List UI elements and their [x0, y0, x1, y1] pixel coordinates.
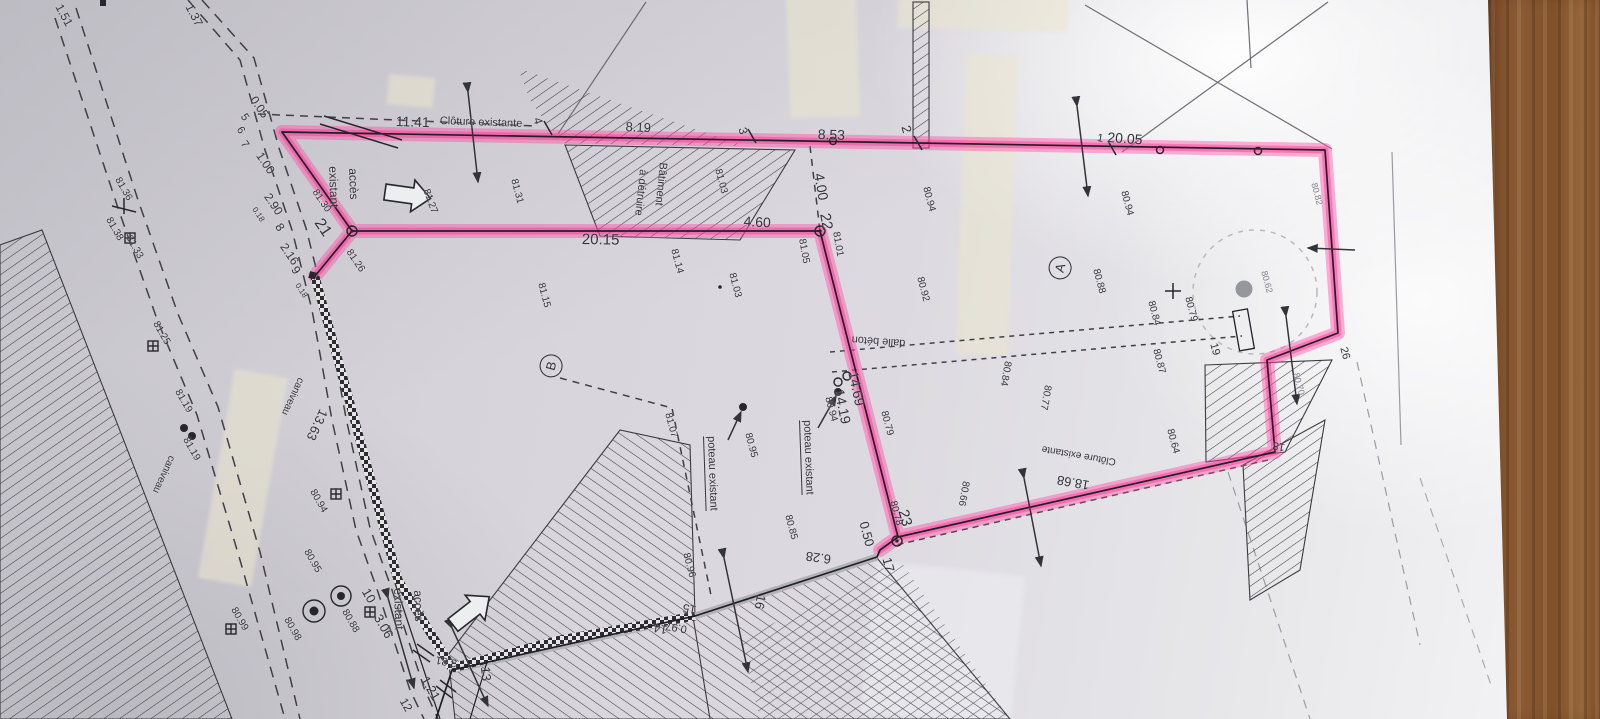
plan-label: 80.84 [1145, 300, 1161, 327]
plan-label: 18 [1272, 439, 1286, 452]
plan-label: à détruire [632, 169, 648, 216]
plan-label: dalle béton [851, 333, 905, 348]
plan-label: 81.27 [421, 188, 439, 215]
plan-label: 1.37 [183, 2, 205, 28]
plan-label: 17 [880, 556, 896, 573]
plan-label: 81.26 [344, 248, 366, 274]
plan-label: 80.79 [878, 410, 894, 437]
plan-label: 80.95 [742, 432, 758, 459]
plan-labels-layer: 1.511.370.055671.002.900.1882.1690.18218… [0, 0, 1600, 719]
plan-label: 80.95 [301, 548, 322, 575]
plan-label: 4.60 [743, 214, 771, 229]
plan-label: 2.90 [262, 191, 285, 217]
plan-label: 80.88 [339, 608, 360, 635]
plan-label: caniveau [279, 376, 305, 417]
plan-label: 81.03 [712, 168, 728, 195]
plan-label: 10 [360, 586, 378, 605]
plan-label: 80.94 [307, 488, 328, 515]
plan-label: 81.33 [123, 234, 144, 261]
plan-label: 80.94 [1118, 190, 1134, 217]
plan-label: 81.05 [796, 238, 810, 264]
plan-label: 81.19 [172, 388, 193, 415]
plan-label: Clôture existante [440, 116, 523, 130]
plan-label: 8.53 [818, 127, 846, 142]
plan-label: 7 [238, 139, 251, 150]
plan-label: 80.70 [1291, 372, 1306, 396]
plan-label: 6 [234, 125, 247, 136]
plan-label: 6.28 [805, 550, 832, 566]
plan-label: 5 [238, 112, 251, 123]
plan-label: 0.18 [250, 206, 265, 223]
plan-label: 4.00 [812, 172, 831, 201]
plan-label: 23 [896, 508, 915, 528]
plan-label: 16 [753, 594, 768, 611]
plan-label: 3 [736, 126, 749, 136]
plan-label: 80.62 [1259, 270, 1274, 294]
plan-label: 18.68 [1056, 474, 1090, 492]
plan-label: 81.14 [668, 248, 684, 275]
plan-label: 81.01 [830, 231, 844, 257]
plan-label: 12 [398, 696, 415, 714]
plan-label: 0.50 [857, 520, 876, 548]
plan-label: 21 [311, 216, 334, 240]
plan-label: 22 [817, 212, 835, 231]
plan-label: 81.38 [103, 216, 124, 243]
plan-label: 1.51 [53, 2, 75, 28]
plan-label: 80.79 [1182, 296, 1198, 323]
plan-label: 13.63 [304, 408, 330, 443]
plan-label: 80.99 [228, 606, 249, 633]
plan-label: 11.41 [396, 114, 430, 129]
plan-label: 80.87 [1150, 348, 1166, 375]
zone-letter-label: B [537, 352, 565, 380]
plan-label: 81.36 [112, 176, 133, 203]
plan-label: 80.96 [680, 552, 696, 579]
plan-label: 81.15 [535, 282, 551, 309]
plan-label: 15 [682, 602, 697, 616]
plan-label: caniveau [150, 454, 176, 495]
plan-label: 1 [1096, 133, 1104, 145]
plan-label: 0.18 [293, 282, 308, 299]
plan-label: 80.85 [782, 514, 798, 541]
plan-label: 20.05 [1107, 130, 1143, 146]
plan-label: 8.19 [625, 120, 651, 134]
plan-label: existant [392, 588, 405, 630]
plan-label: 80.92 [914, 276, 930, 303]
plan-label: 80.82 [1309, 182, 1324, 206]
plan-label: 81.31 [508, 178, 524, 205]
plan-label: 81.25 [150, 320, 171, 347]
plan-label: 80.77 [1038, 384, 1052, 410]
plan-label: 81.03 [726, 272, 742, 299]
plan-label: 80.66 [956, 480, 970, 506]
plan-label: 80.94 [920, 186, 936, 213]
plan-label: 3.81 [435, 653, 458, 668]
plan-label: 80.64 [1164, 428, 1180, 455]
plan-label: 8 [273, 221, 287, 233]
plan-label: poteau existant [801, 420, 815, 495]
zone-letter-label: A [1046, 254, 1074, 282]
photo-of-survey-plan: 1.511.370.055671.002.900.1882.1690.18218… [0, 0, 1600, 719]
plan-label: 2.16 [278, 241, 301, 267]
plan-label: accès [412, 590, 425, 622]
plan-label: 0.97 [665, 619, 688, 634]
plan-label: 13 [479, 666, 493, 682]
plan-label: 81.07 [662, 412, 678, 439]
plan-label: 1.21 [419, 674, 443, 702]
plan-label: poteau existant [705, 436, 719, 511]
plan-label: existant [327, 166, 340, 208]
plan-label: Clôture existante [1041, 443, 1117, 466]
plan-label: 20.15 [582, 232, 620, 248]
plan-label: 80.88 [1090, 268, 1106, 295]
plan-label: 80.84 [998, 360, 1012, 386]
plan-label: 4 [531, 116, 544, 126]
plan-label: 14 [653, 622, 668, 636]
plan-label: 80.98 [281, 616, 302, 643]
plan-label: 2 [899, 124, 913, 134]
plan-label: 81.19 [180, 436, 201, 463]
plan-label: 1.00 [254, 150, 277, 176]
plan-label: accès [347, 168, 360, 200]
plan-label: 26 [1337, 346, 1351, 361]
plan-label: 19 [1207, 342, 1221, 357]
plan-label: Bâtiment [653, 162, 668, 206]
